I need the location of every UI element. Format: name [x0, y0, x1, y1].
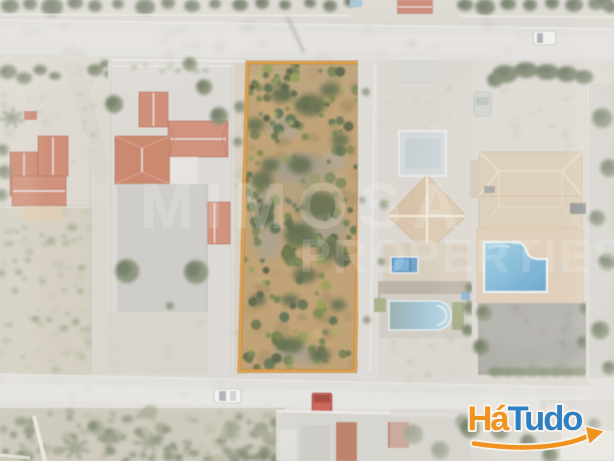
- svg-text:PROPERTIES: PROPERTIES: [300, 230, 614, 282]
- svg-text:HáTudo: HáTudo: [468, 400, 583, 438]
